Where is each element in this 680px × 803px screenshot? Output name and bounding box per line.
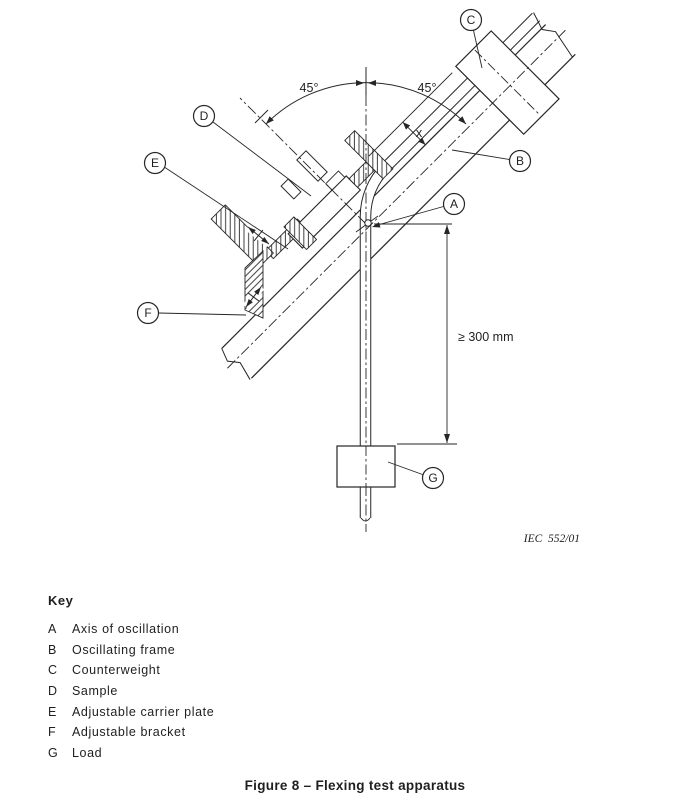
key-item-letter: B [48,640,72,661]
balloon-G: G [388,462,444,489]
key-item-label: Adjustable bracket [72,725,186,739]
key-item: AAxis of oscillation [48,619,214,640]
key-item-label: Counterweight [72,663,160,677]
key-item-label: Load [72,746,102,760]
key-item-letter: E [48,702,72,723]
key-item-label: Adjustable carrier plate [72,705,214,719]
x-dim-label: x [416,125,423,140]
key-block: Key AAxis of oscillation BOscillating fr… [48,593,214,764]
key-item: BOscillating frame [48,640,214,661]
balloon-letter-B: B [516,154,524,168]
hang-length-label: ≥ 300 mm [458,330,514,344]
key-item-letter: G [48,743,72,764]
flexing-apparatus-diagram: 45° 45° x ≥ 300 mm A [0,0,680,560]
phantom-clamp-nub [281,179,301,199]
key-item-label: Oscillating frame [72,643,175,657]
balloon-letter-F: F [144,306,151,320]
document-page: 45° 45° x ≥ 300 mm A [0,0,680,803]
key-item-label: Axis of oscillation [72,622,179,636]
key-list: AAxis of oscillation BOscillating frame … [48,619,214,764]
balloon-letter-G: G [428,471,437,485]
hang-length-dimension: ≥ 300 mm [374,224,514,444]
balloon-F: F [138,303,247,324]
figure-caption: Figure 8 – Flexing test apparatus [30,778,680,793]
key-item-letter: A [48,619,72,640]
key-item-letter: C [48,660,72,681]
key-item-letter: D [48,681,72,702]
key-item: FAdjustable bracket [48,722,214,743]
key-title: Key [48,593,214,608]
balloon-letter-A: A [450,197,458,211]
angle-label-right: 45° [418,81,437,95]
balloon-letter-E: E [151,156,159,170]
phantom-clamp-block [297,151,327,181]
balloon-E: E [145,153,289,250]
key-item: CCounterweight [48,660,214,681]
mirror-position [240,98,366,224]
key-item-label: Sample [72,684,118,698]
key-item: GLoad [48,743,214,764]
balloon-letter-D: D [200,109,209,123]
key-item: EAdjustable carrier plate [48,702,214,723]
key-item-letter: F [48,722,72,743]
drawing-reference: IEC 552/01 [470,533,580,545]
balloon-letter-C: C [467,13,476,27]
key-item: DSample [48,681,214,702]
angle-label-left: 45° [300,81,319,95]
mirror-end-tick [255,110,268,123]
cable-end-cap [361,518,370,521]
